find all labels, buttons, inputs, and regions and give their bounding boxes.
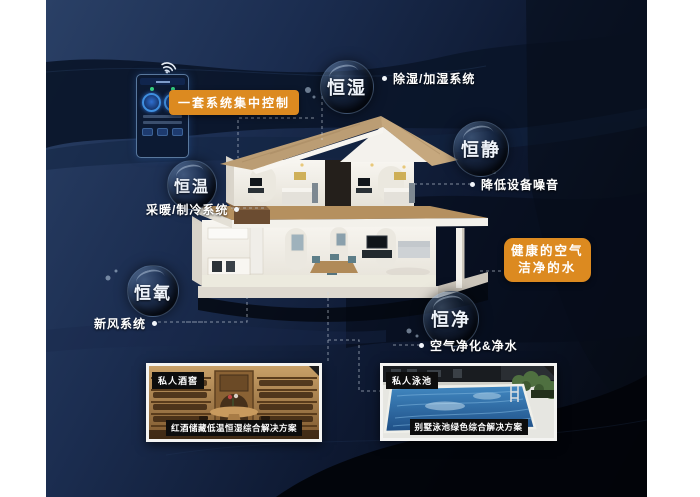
healthy-air-water-badge: 健康的空气 洁净的水 [504,238,591,282]
label-dehumidify-system: 除湿/加湿系统 [382,70,475,87]
pool-caption: 别墅泳池绿色综合解决方案 [409,419,527,435]
bullet-dot-icon [470,182,475,187]
poster-canvas: 一套系统集中控制 恒湿 恒静 恒温 恒氧 恒净 除湿/加湿系统 降低设备噪音 采… [46,0,647,497]
label-noise-reduction: 降低设备噪音 [470,176,559,193]
phone-data-row [143,121,182,124]
label-heating-cooling-system: 采暖/制冷系统 [146,201,239,218]
central-control-badge: 一套系统集中控制 [169,90,299,115]
label-air-water-purification: 空气净化&净水 [419,337,518,354]
pool-photo: 私人泳池 别墅泳池绿色综合解决方案 [383,366,554,438]
bullet-dot-icon [234,207,239,212]
phone-buttons [140,128,185,136]
phone-app-header [140,78,185,85]
wine-cellar-tag: 私人酒窖 [152,372,204,389]
bullet-dot-icon [382,76,387,81]
photo-corner-fold [544,366,554,376]
bullet-dot-icon [152,321,157,326]
bullet-dot-icon [419,343,424,348]
wine-cellar-card: 私人酒窖 红酒储藏低温恒湿综合解决方案 [146,363,322,442]
bubble-constant-humidity: 恒湿 [320,60,374,114]
pool-card: 私人泳池 别墅泳池绿色综合解决方案 [380,363,557,441]
wine-cellar-caption: 红酒储藏低温恒湿综合解决方案 [166,420,302,436]
dial-icon [142,93,161,112]
pool-tag: 私人泳池 [386,372,438,389]
label-fresh-air-system: 新风系统 [94,315,157,332]
bubble-constant-quiet: 恒静 [453,121,509,177]
smart-home-app-phone [136,74,189,158]
phone-data-row [143,115,182,118]
bubble-constant-oxygen: 恒氧 [127,265,179,317]
wine-cellar-photo: 私人酒窖 红酒储藏低温恒湿综合解决方案 [149,366,319,439]
photo-corner-fold [309,366,319,376]
